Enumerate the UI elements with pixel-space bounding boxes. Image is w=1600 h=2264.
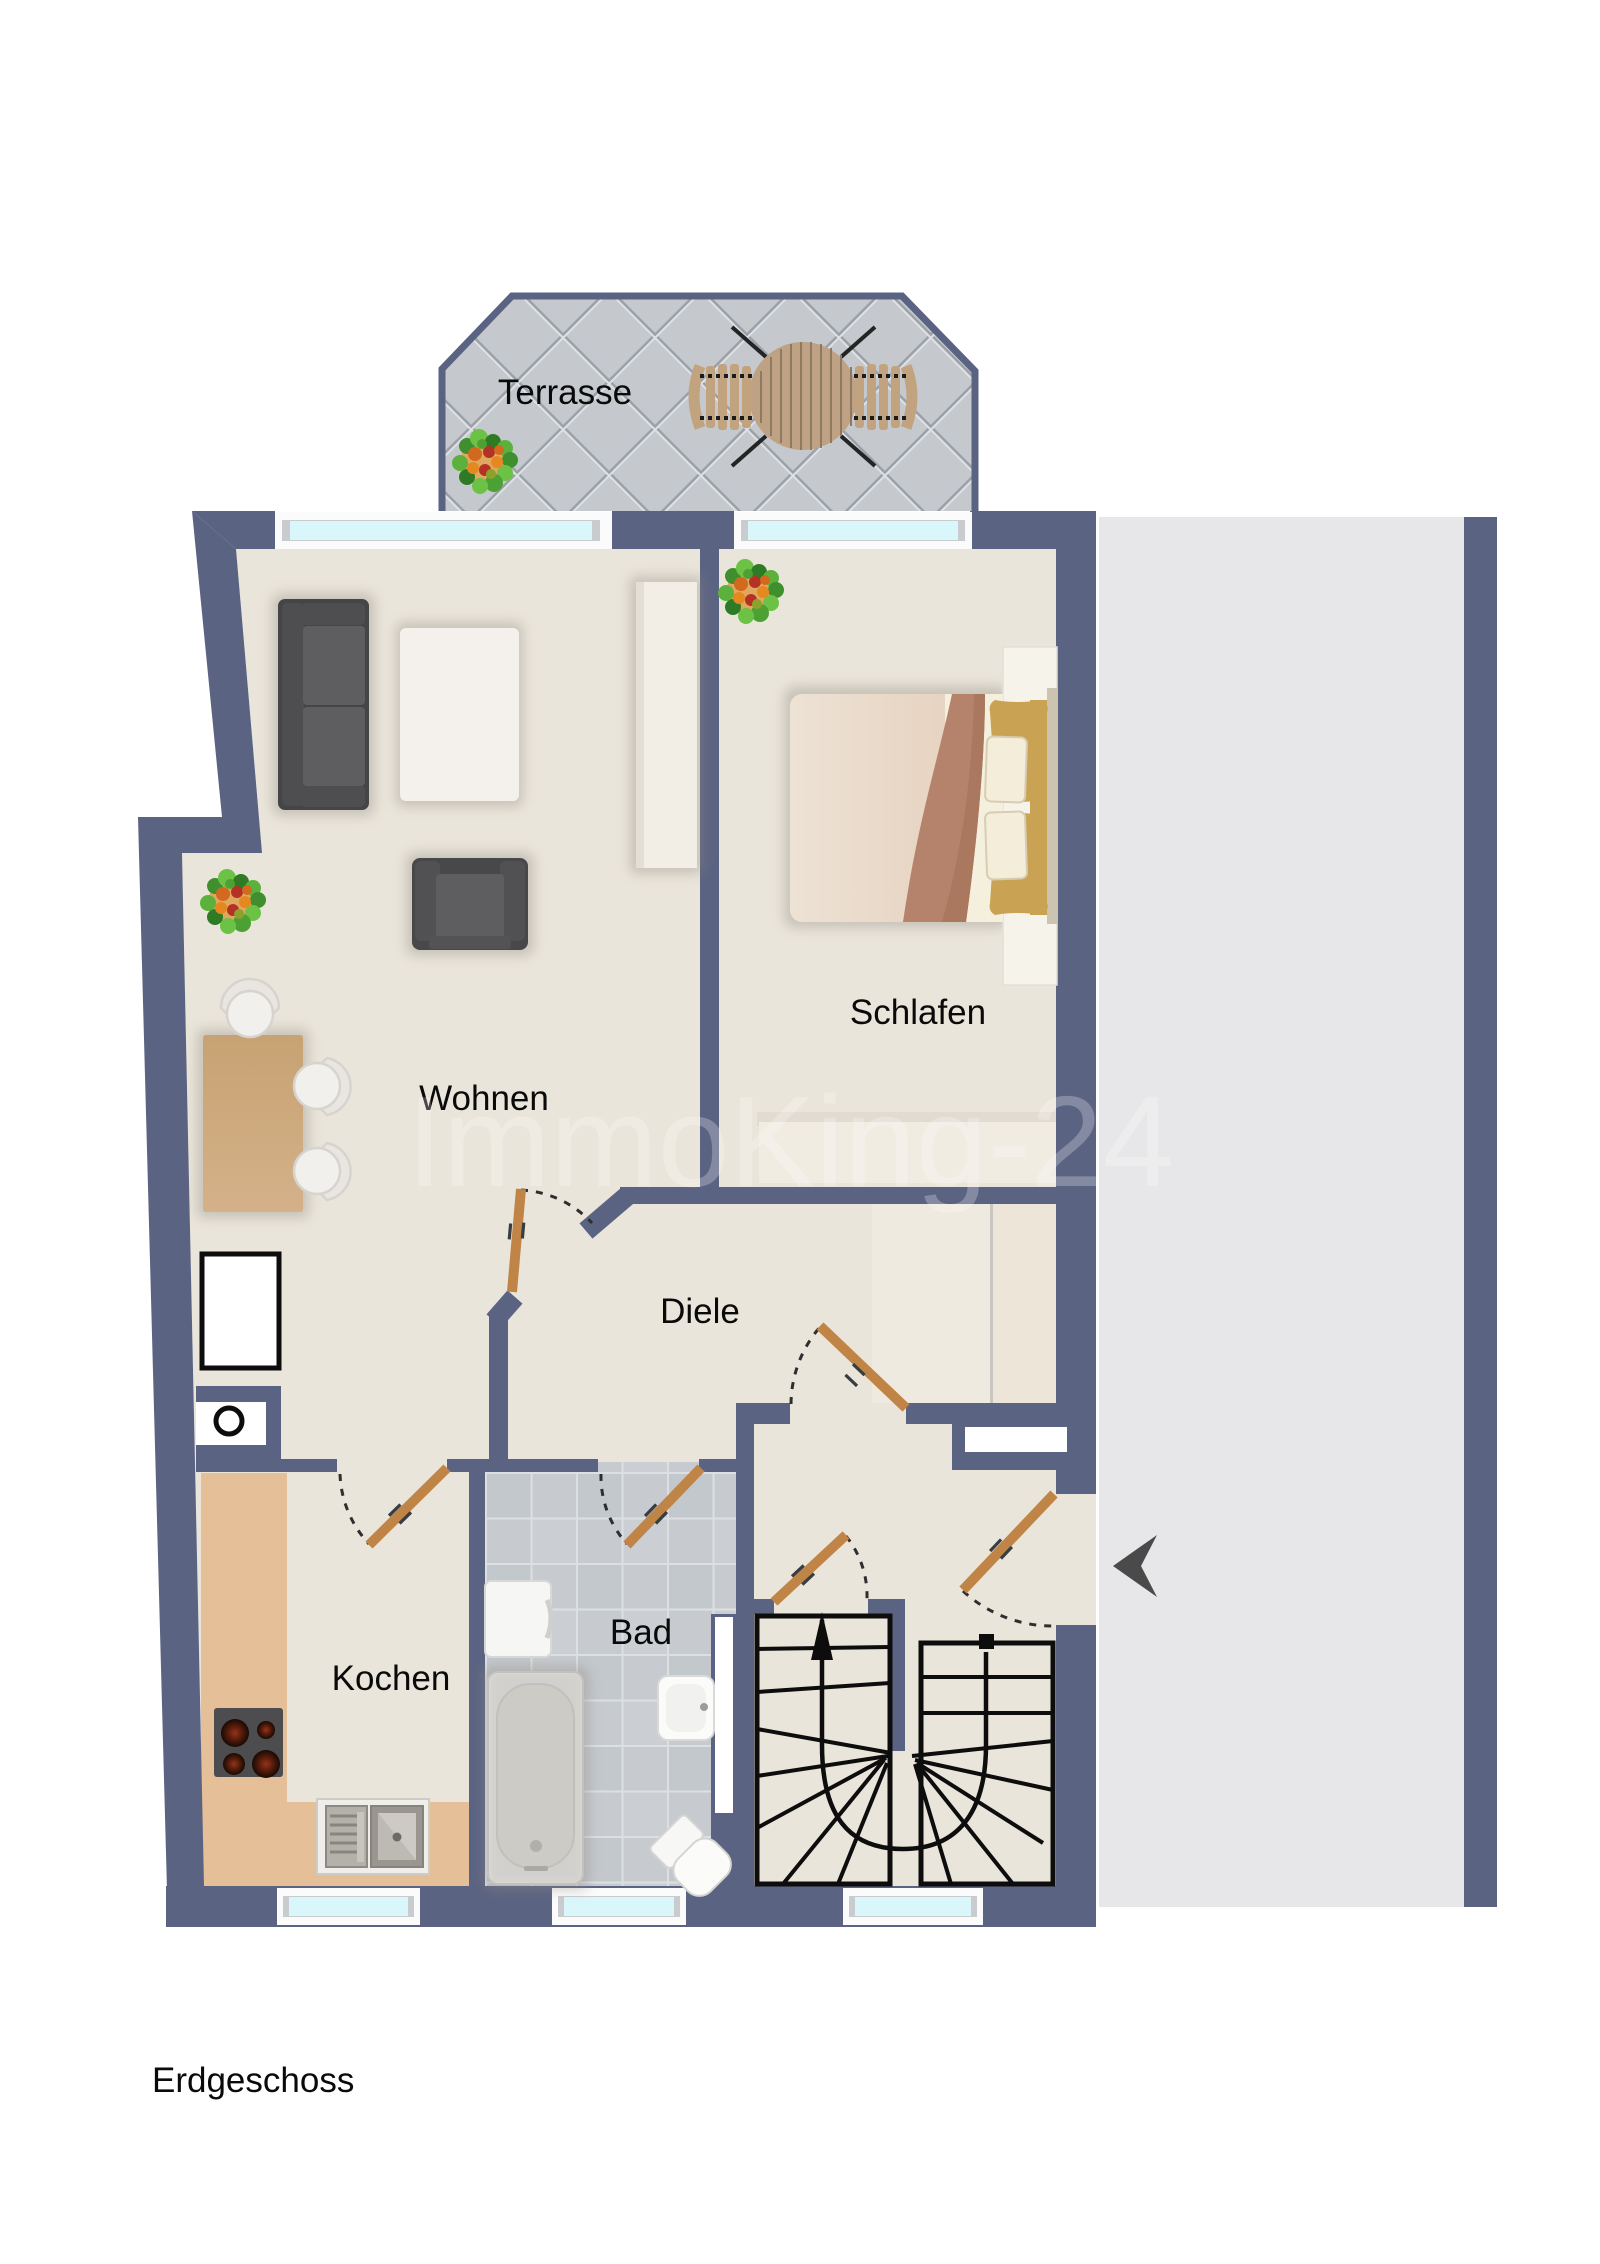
svg-text:Erdgeschoss: Erdgeschoss: [152, 2061, 354, 2100]
svg-text:Terrasse: Terrasse: [498, 373, 632, 412]
svg-text:Kochen: Kochen: [332, 1659, 451, 1698]
svg-text:Diele: Diele: [660, 1292, 740, 1331]
svg-text:Bad: Bad: [610, 1613, 672, 1652]
svg-text:ImmoKing-24: ImmoKing-24: [407, 1070, 1174, 1214]
svg-text:Schlafen: Schlafen: [850, 993, 986, 1032]
